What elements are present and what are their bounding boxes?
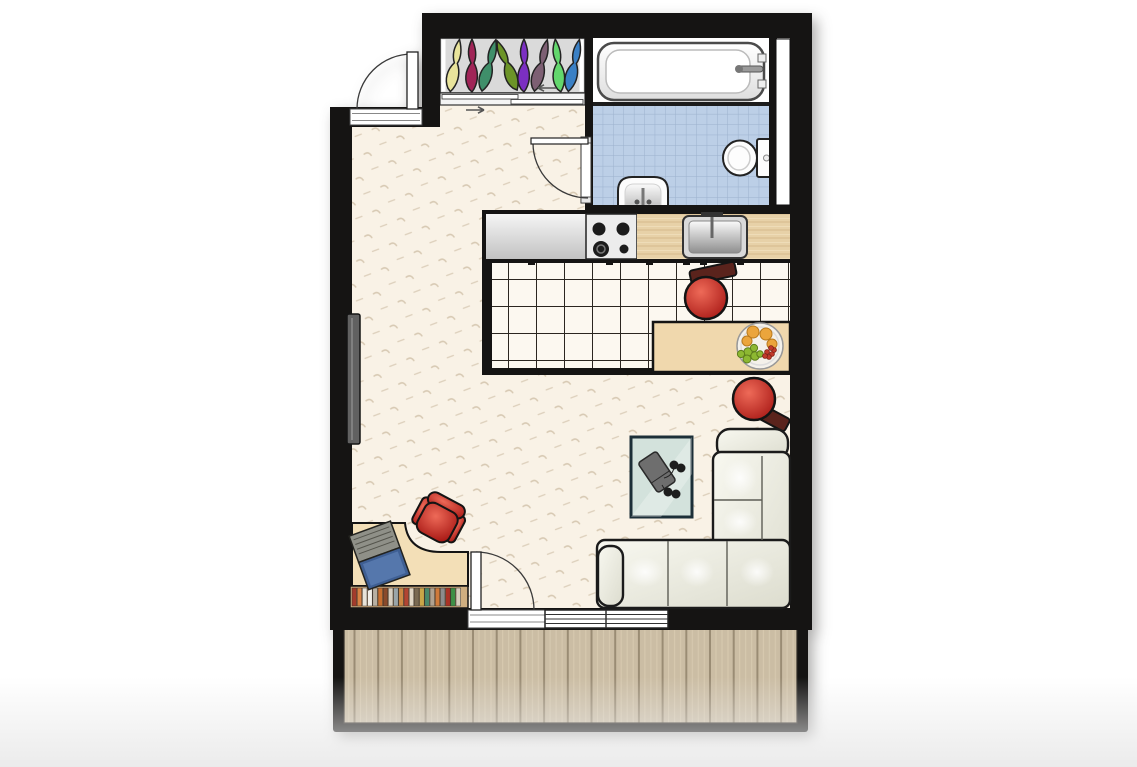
kitchen-sink [683,211,747,258]
dining-table [653,322,790,372]
burner [617,223,630,236]
door-sill [350,109,422,125]
closet-side-panel [442,40,446,92]
radiator [347,314,360,444]
door-leaf [407,52,418,109]
wall-bath-bottom [585,205,790,212]
closet [440,38,585,113]
apartment [330,13,812,732]
bathtub [598,43,766,100]
stool-seat [685,277,727,319]
door-sill [468,610,547,628]
counter-worktop [486,214,586,259]
door-leaf [471,552,481,610]
burner [593,223,606,236]
service-shaft [776,39,790,205]
burner-small [620,245,629,254]
wall-entry-side [422,13,440,127]
floor-plan-canvas [0,0,1137,767]
fruit-bowl [737,323,783,369]
living-room-window [545,610,668,628]
gas-stove [586,214,637,259]
coffee-table [631,437,692,517]
tub-interior [606,50,750,93]
sink-handle [635,200,640,205]
pedestal-sink [618,177,668,207]
tub-handle [758,54,766,62]
kitchen [482,210,790,375]
page-bottom-fade [0,677,1137,767]
toilet [723,139,776,177]
sliding-door-panel [511,100,583,105]
sink-basin [689,221,741,253]
flush-button [764,155,770,161]
entry-door [350,52,422,125]
door-threshold [581,137,591,203]
bathroom [593,38,776,207]
stove-panel [586,214,637,259]
tub-spout [735,65,743,73]
closet-sliding-doors [440,93,585,105]
books [352,588,461,606]
floor-plan-drawing [0,0,1137,767]
sofa-left-armrest [598,546,623,606]
tub-handle [758,80,766,88]
door-leaf [531,138,588,144]
sink-handle [647,200,652,205]
wall-top [422,13,812,38]
burner-large [593,241,609,257]
sliding-door-panel [442,95,518,100]
stool-seat [733,378,775,420]
door-swing-arc [357,54,412,109]
wall-right [790,13,812,630]
tub-divider-line [593,102,776,106]
